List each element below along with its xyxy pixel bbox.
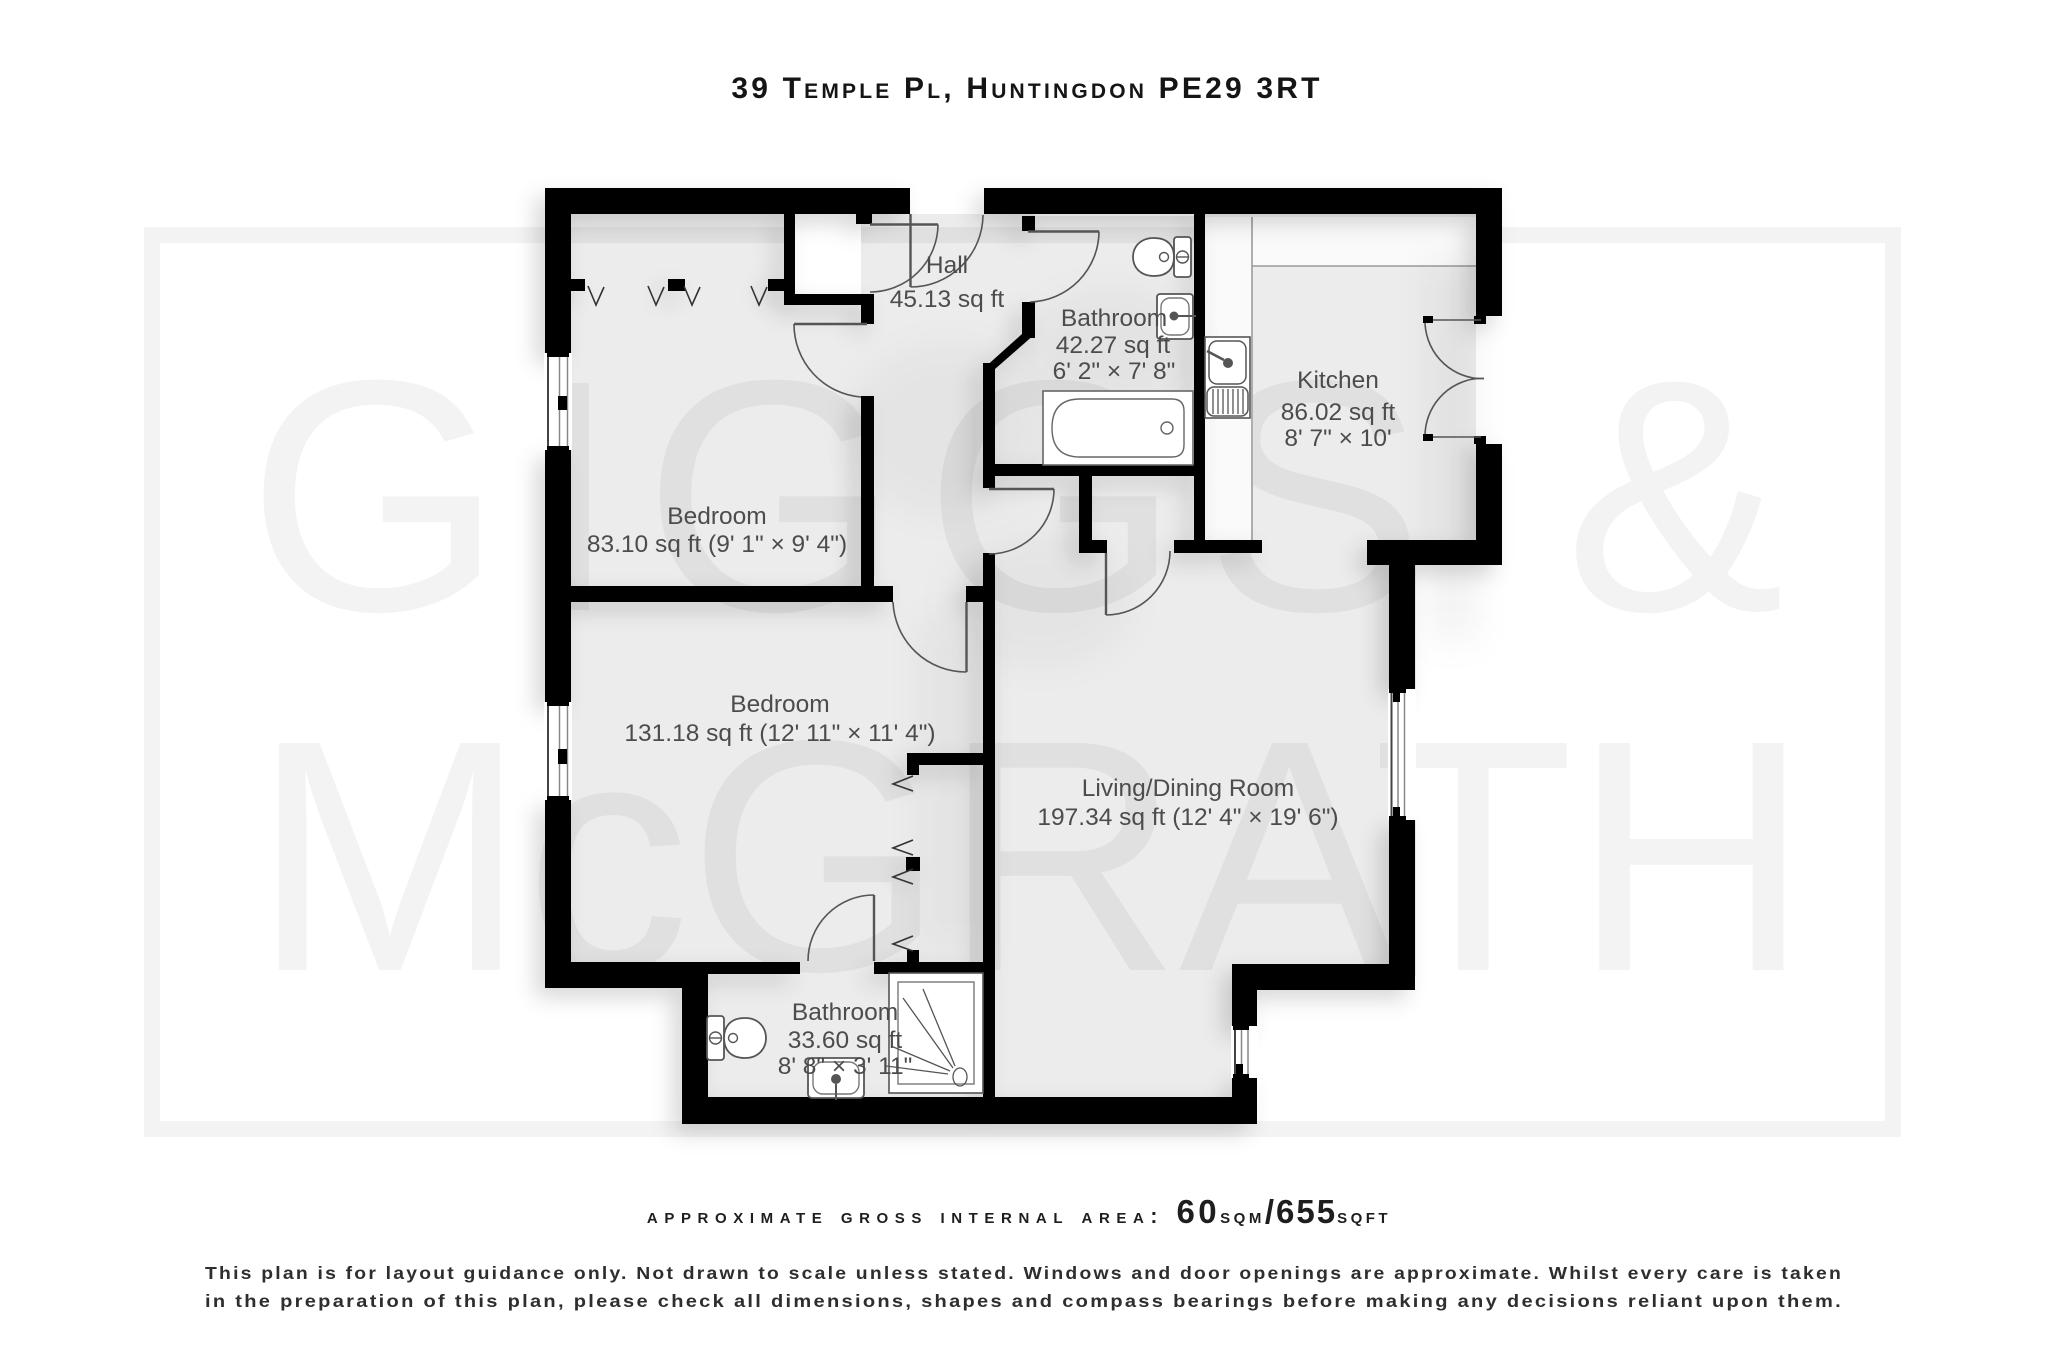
svg-text:86.02 sq ft: 86.02 sq ft xyxy=(1281,399,1396,426)
svg-text:8' 8" × 3' 11": 8' 8" × 3' 11" xyxy=(778,1053,913,1080)
svg-text:8' 7" × 10': 8' 7" × 10' xyxy=(1284,425,1391,452)
svg-text:This plan is for layout guidan: This plan is for layout guidance only. N… xyxy=(205,1263,1843,1283)
svg-text:Hall: Hall xyxy=(926,252,968,279)
svg-text:39 Temple Pl, Huntingdon PE29: 39 Temple Pl, Huntingdon PE29 3RT xyxy=(731,72,1322,105)
svg-text:131.18 sq ft (12' 11" × 11' 4": 131.18 sq ft (12' 11" × 11' 4") xyxy=(624,720,935,747)
svg-text:Kitchen: Kitchen xyxy=(1297,367,1379,394)
svg-text:Bedroom: Bedroom xyxy=(730,691,829,718)
svg-text:Living/Dining Room: Living/Dining Room xyxy=(1082,775,1294,802)
svg-text:45.13 sq ft: 45.13 sq ft xyxy=(890,286,1005,313)
svg-text:6' 2" × 7' 8": 6' 2" × 7' 8" xyxy=(1053,358,1176,385)
svg-text:Bedroom: Bedroom xyxy=(667,503,766,530)
svg-text:42.27 sq ft: 42.27 sq ft xyxy=(1056,332,1171,359)
svg-text:in the preparation of this pla: in the preparation of this plan, please … xyxy=(205,1291,1843,1311)
svg-text:McGRATH: McGRATH xyxy=(252,671,1808,1040)
svg-text:83.10 sq ft (9' 1" × 9' 4"): 83.10 sq ft (9' 1" × 9' 4") xyxy=(587,531,847,558)
svg-text:33.60 sq ft: 33.60 sq ft xyxy=(788,1027,903,1054)
svg-text:Bathroom: Bathroom xyxy=(1061,305,1167,332)
svg-text:197.34 sq ft (12' 4" × 19' 6"): 197.34 sq ft (12' 4" × 19' 6") xyxy=(1037,804,1338,831)
svg-text:Bathroom: Bathroom xyxy=(792,999,898,1026)
